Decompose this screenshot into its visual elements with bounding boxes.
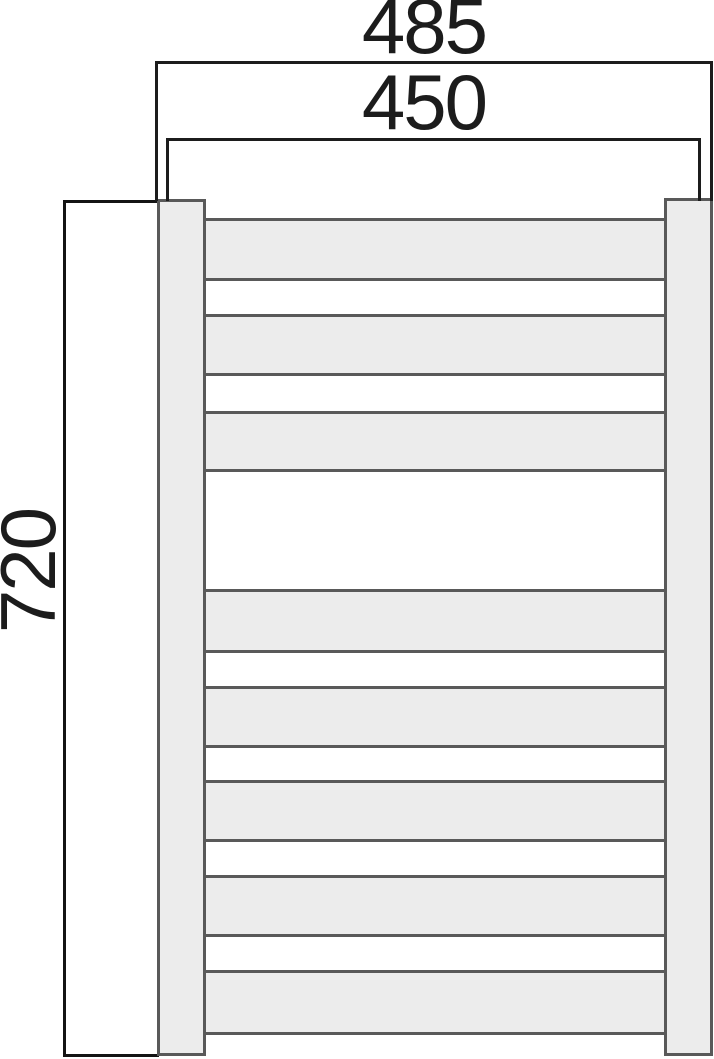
- rung: [203, 314, 669, 376]
- height-label: 720: [0, 471, 68, 671]
- inner-width-label: 450: [304, 62, 544, 142]
- rung: [203, 686, 669, 748]
- rung: [203, 411, 669, 472]
- rung: [203, 589, 669, 653]
- rung: [203, 780, 669, 842]
- inner-width-dimension-bracket: [166, 138, 701, 201]
- dimension-drawing: 485 450 720: [0, 0, 714, 1059]
- right-rail: [664, 198, 713, 1056]
- rung: [203, 218, 669, 281]
- overall-width-label: 485: [304, 0, 544, 66]
- rung: [203, 875, 669, 937]
- rung: [203, 970, 669, 1035]
- left-rail: [157, 199, 206, 1056]
